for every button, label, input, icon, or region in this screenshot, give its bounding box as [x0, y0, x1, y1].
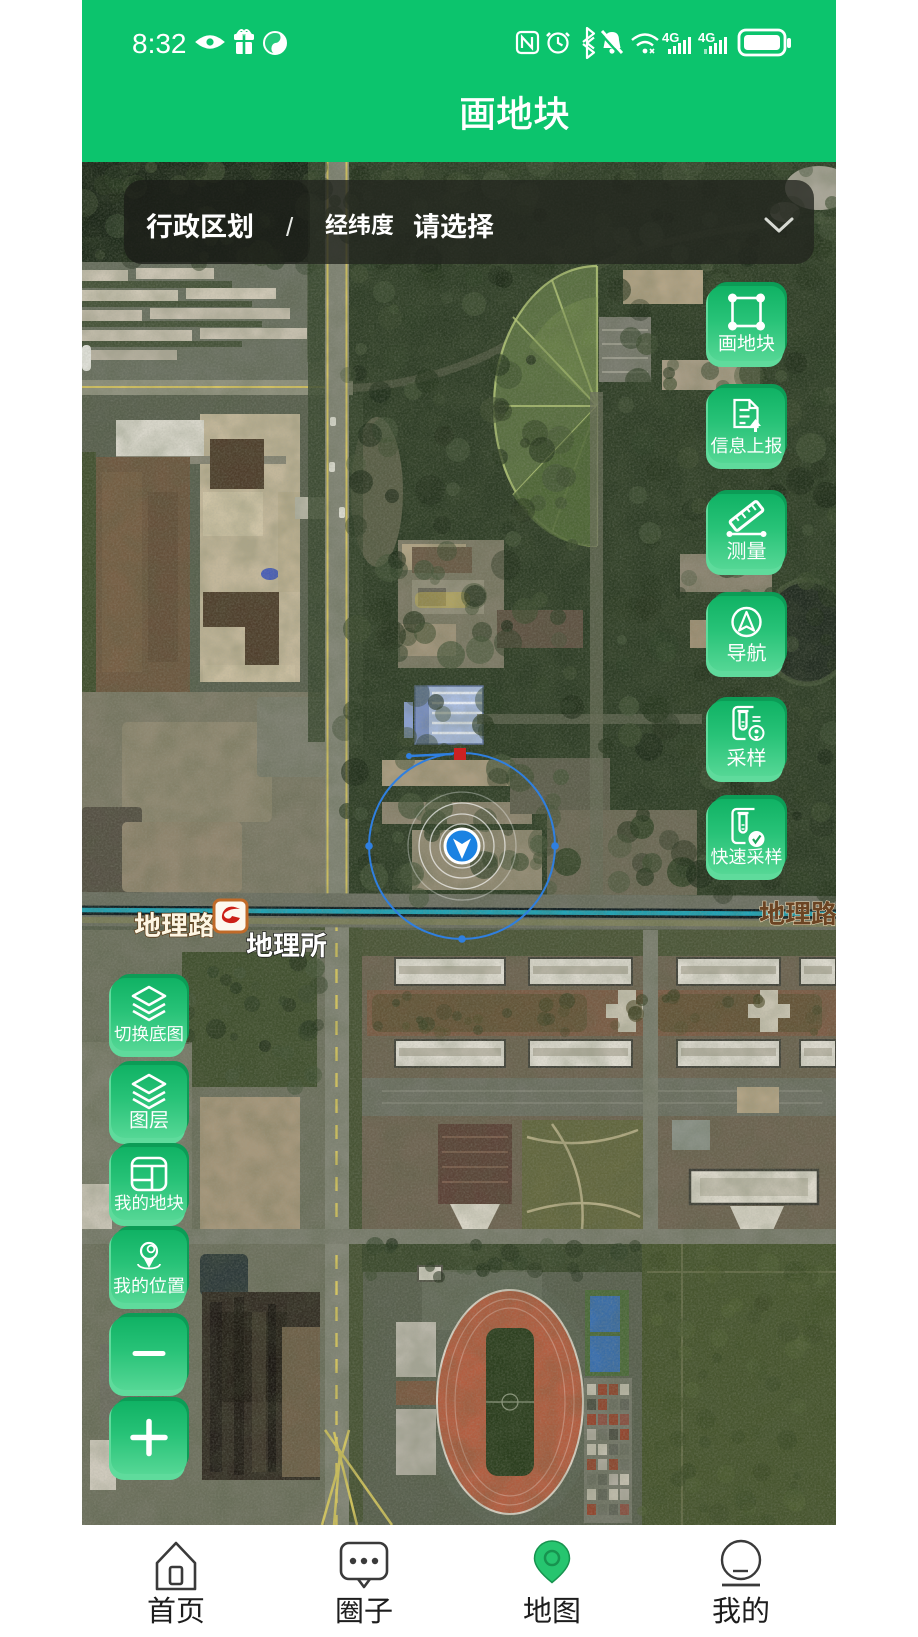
svg-text:/: / — [286, 212, 294, 242]
svg-text:8:32: 8:32 — [132, 28, 187, 59]
svg-text:4G: 4G — [698, 30, 715, 45]
svg-text:4G: 4G — [662, 30, 679, 45]
